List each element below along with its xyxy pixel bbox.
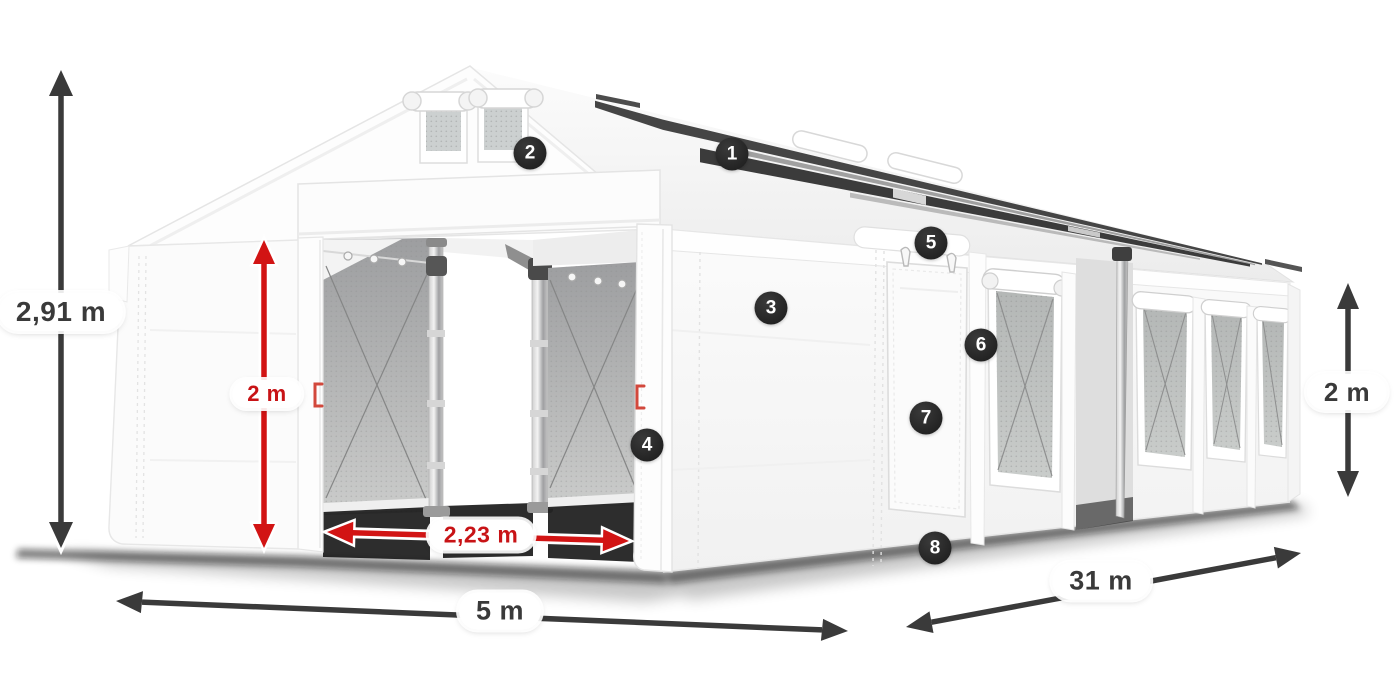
tent-dimensions-diagram: 2,91 m 2 m 2,23 m 5 m 31 m 2 m 1 2 3 4 5… [0,0,1400,700]
side-door-panel [887,247,967,517]
mesh-window-2 [1201,299,1252,462]
front-right-door-panel [634,224,672,572]
side-strap [969,252,986,545]
callout-8-ground-skirt[interactable]: 8 [919,532,952,565]
far-end-wall [1288,284,1300,502]
callout-7-side-door[interactable]: 7 [910,402,943,435]
label-side-height: 2 m [1307,374,1387,410]
callout-2-gable-window[interactable]: 2 [514,137,547,170]
callout-1-roof[interactable]: 1 [716,138,749,171]
label-entrance-width: 2,23 m [429,520,534,551]
entrance-openings [323,230,640,562]
left-pillar [298,237,323,552]
mesh-window-3 [1253,306,1292,458]
side-post [1062,272,1076,530]
mesh-window-1 [1132,291,1197,470]
label-tent-width: 5 m [459,593,541,630]
label-tent-length: 31 m [1052,563,1150,600]
gable-roller-tubes [403,89,543,111]
side-window-rollup [982,268,1070,492]
callout-6-side-window[interactable]: 6 [965,329,998,362]
module-gap [1076,247,1133,530]
callout-3-side-wall[interactable]: 3 [755,292,788,325]
side-post [1247,306,1257,508]
label-entrance-height: 2 m [232,380,301,408]
label-total-height: 2,91 m [0,293,123,331]
callout-5-eave[interactable]: 5 [915,227,948,260]
callout-4-front-door[interactable]: 4 [631,429,664,462]
tent-illustration [0,0,1400,700]
side-post [1193,297,1205,514]
